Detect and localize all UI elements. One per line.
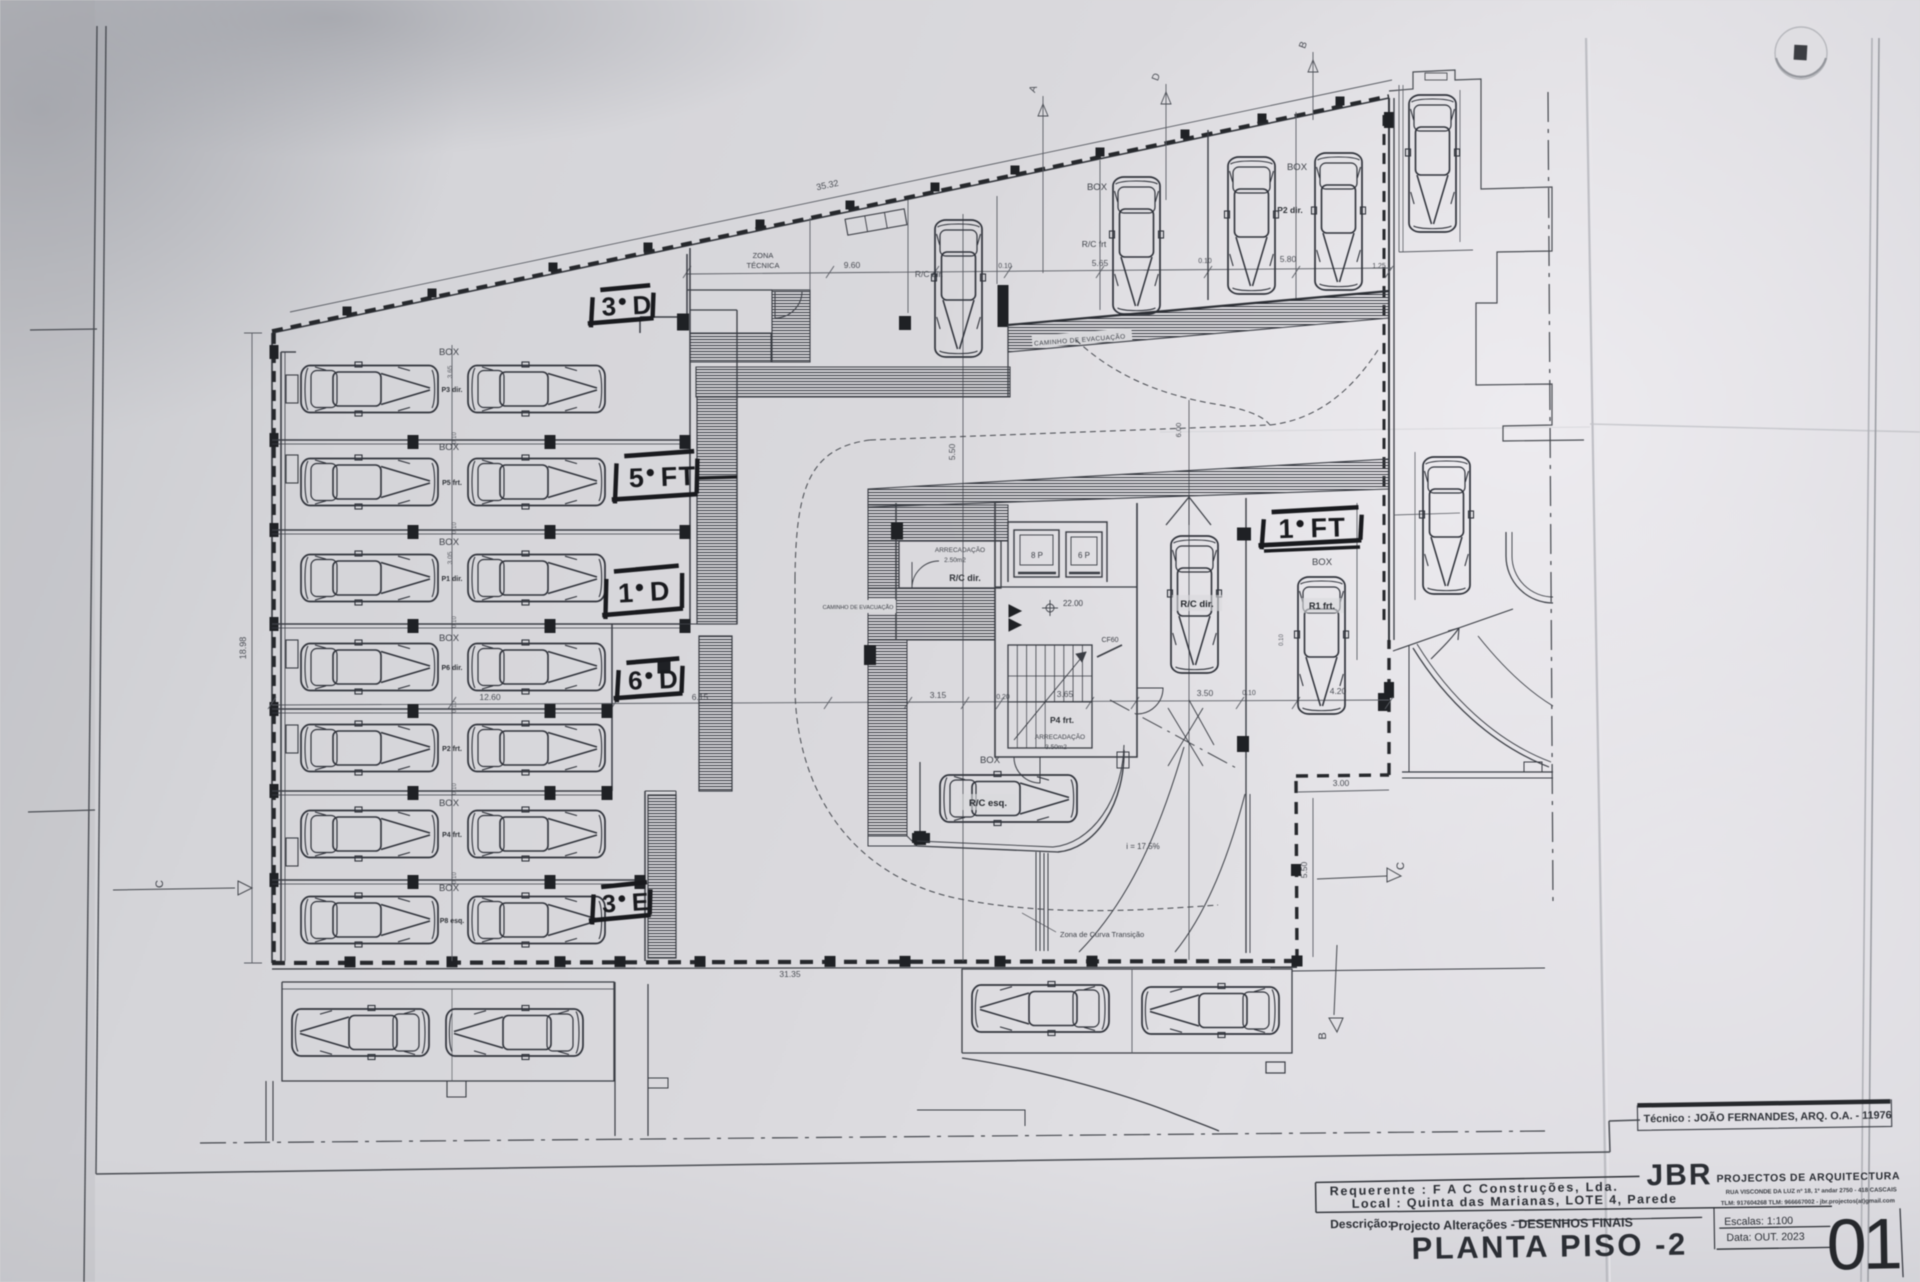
svg-text:BOX: BOX	[439, 633, 460, 644]
svg-text:Descrição:: Descrição:	[1330, 1216, 1392, 1231]
svg-text:1.25: 1.25	[1372, 263, 1386, 270]
svg-text:12.60: 12.60	[479, 692, 501, 702]
svg-text:B: B	[1317, 1032, 1329, 1039]
svg-text:P4 frt.: P4 frt.	[442, 832, 462, 839]
svg-text:3.50: 3.50	[1197, 688, 1214, 698]
svg-text:CF60: CF60	[1101, 637, 1118, 644]
svg-text:P4 frt.: P4 frt.	[1050, 715, 1074, 725]
svg-text:PLANTA PISO -2: PLANTA PISO -2	[1411, 1227, 1688, 1266]
svg-text:BOX: BOX	[980, 755, 1001, 766]
svg-text:0.10: 0.10	[452, 783, 458, 795]
svg-text:P5 frt.: P5 frt.	[442, 480, 462, 487]
svg-text:5.50: 5.50	[1299, 861, 1309, 878]
svg-text:9.60: 9.60	[844, 260, 861, 270]
svg-text:R/C dir.: R/C dir.	[1180, 599, 1213, 610]
svg-text:5.80: 5.80	[1280, 254, 1297, 264]
svg-text:5.50: 5.50	[947, 443, 957, 460]
svg-text:6 P: 6 P	[1078, 551, 1090, 560]
svg-text:Zona de Curva Transição: Zona de Curva Transição	[1060, 930, 1144, 939]
svg-text:P8 esq.: P8 esq.	[440, 918, 465, 925]
svg-text:R1 frt.: R1 frt.	[1309, 601, 1335, 611]
svg-text:Escalas: 1:100: Escalas: 1:100	[1724, 1215, 1793, 1228]
svg-text:BOX: BOX	[1087, 182, 1108, 193]
svg-text:P3 dir.: P3 dir.	[441, 387, 462, 394]
svg-text:ARRECADAÇÃO: ARRECADAÇÃO	[1035, 732, 1085, 741]
svg-text:0.10: 0.10	[452, 616, 458, 628]
svg-text:5● FT: 5● FT	[628, 461, 697, 494]
svg-text:R/C frt: R/C frt	[1082, 239, 1107, 249]
svg-text:CAMINHO DE EVACUAÇÃO: CAMINHO DE EVACUAÇÃO	[823, 604, 895, 611]
svg-text:0.10: 0.10	[998, 263, 1012, 270]
svg-text:0.10: 0.10	[452, 872, 458, 884]
svg-text:R/C dir.: R/C dir.	[949, 573, 981, 583]
svg-text:3.50m2: 3.50m2	[1045, 744, 1067, 751]
svg-text:BOX: BOX	[439, 442, 460, 453]
svg-text:22.00: 22.00	[1063, 599, 1084, 608]
svg-text:0.10: 0.10	[452, 701, 458, 713]
svg-text:6.00: 6.00	[1174, 423, 1183, 438]
svg-text:3.00: 3.00	[1333, 778, 1350, 788]
svg-text:0.10: 0.10	[1198, 258, 1212, 265]
svg-text:31.35: 31.35	[779, 969, 801, 979]
svg-text:JBR: JBR	[1646, 1158, 1713, 1192]
svg-text:P2 dir.: P2 dir.	[1277, 205, 1303, 215]
svg-text:BOX: BOX	[1312, 557, 1333, 568]
svg-text:C: C	[154, 880, 166, 888]
svg-text:0.10: 0.10	[452, 522, 458, 534]
svg-text:BOX: BOX	[439, 798, 460, 809]
svg-text:BOX: BOX	[439, 537, 460, 548]
svg-text:i = 17.5%: i = 17.5%	[1126, 842, 1160, 851]
svg-text:1● FT: 1● FT	[1278, 512, 1347, 544]
svg-text:BOX: BOX	[439, 883, 460, 894]
svg-text:3.05: 3.05	[447, 551, 454, 564]
svg-text:3.15: 3.15	[930, 690, 947, 700]
svg-text:P1 dir.: P1 dir.	[441, 576, 462, 583]
svg-text:C: C	[1395, 862, 1407, 870]
svg-text:ZONA: ZONA	[753, 251, 774, 260]
svg-text:TÉCNICA: TÉCNICA	[747, 261, 780, 270]
svg-text:0.10: 0.10	[1279, 634, 1285, 646]
svg-text:01: 01	[1826, 1204, 1900, 1282]
svg-text:ARRECADAÇÃO: ARRECADAÇÃO	[935, 545, 985, 554]
svg-text:18.98: 18.98	[238, 637, 248, 660]
svg-text:Data: OUT. 2023: Data: OUT. 2023	[1726, 1231, 1805, 1244]
svg-text:R/C esq.: R/C esq.	[969, 798, 1007, 809]
svg-text:8 P: 8 P	[1031, 551, 1043, 560]
svg-text:3.65: 3.65	[447, 365, 454, 378]
svg-text:P2 frt.: P2 frt.	[442, 746, 462, 753]
svg-text:BOX: BOX	[1287, 162, 1308, 173]
svg-text:0.10: 0.10	[1242, 690, 1256, 697]
svg-text:3.65: 3.65	[1057, 689, 1074, 699]
svg-text:P6 dir.: P6 dir.	[441, 665, 462, 672]
svg-text:BOX: BOX	[439, 347, 460, 358]
svg-text:2.50m2: 2.50m2	[944, 557, 966, 564]
svg-text:4.20: 4.20	[1330, 686, 1347, 696]
svg-text:R/C dir.: R/C dir.	[915, 269, 943, 279]
